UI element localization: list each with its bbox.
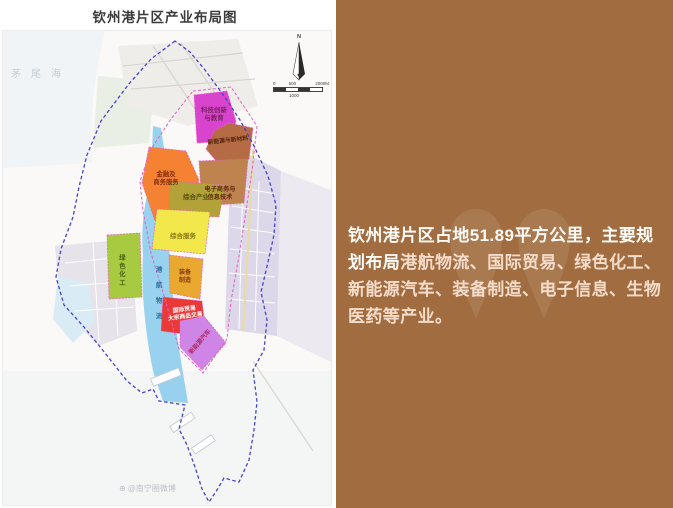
industry-layout-map: 茅尾海 N 0 500 2000M 1000 xyxy=(2,30,332,506)
scale-tick-1000: 1000 xyxy=(289,93,329,98)
zone-label-green-chemical: 绿色化工 xyxy=(117,244,125,298)
globe-icon: ⊕ xyxy=(119,484,126,493)
map-scale-bar: 0 500 2000M 1000 xyxy=(273,81,329,98)
map-panel: 钦州港片区产业布局图 xyxy=(0,0,336,508)
scale-tick-500: 500 xyxy=(289,81,297,86)
map-graphic xyxy=(3,31,332,506)
map-watermark-text: @南宁圈微博 xyxy=(128,484,176,493)
map-title: 钦州港片区产业布局图 xyxy=(0,6,330,26)
scale-tick-0: 0 xyxy=(273,81,276,86)
zone-label-port-logistics: 港航物流 xyxy=(153,246,161,348)
scale-tick-2000: 2000M xyxy=(315,81,329,86)
sea-label: 茅尾海 xyxy=(11,65,71,80)
zone-label-tech-innovation: 科技创新 与教育 xyxy=(192,107,236,123)
info-panel: 钦州港片区占地51.89平方公里，主要规划布局港航物流、国际贸易、绿色化工、新能… xyxy=(336,0,673,508)
description-text: 钦州港片区占地51.89平方公里，主要规划布局港航物流、国际贸易、绿色化工、新能… xyxy=(348,222,664,330)
zone-label-equipment-mfg: 装备 制造 xyxy=(172,270,198,285)
zone-label-comprehensive-industry: 综合产业 xyxy=(174,194,218,202)
map-watermark: ⊕@南宁圈微博 xyxy=(119,483,176,494)
scale-bar-segments xyxy=(273,87,323,92)
zone-label-comprehensive-service: 综合服务 xyxy=(161,233,205,241)
screenshot-root: 钦州港片区产业布局图 xyxy=(0,0,673,508)
compass: N xyxy=(289,34,309,87)
zone-label-finance-business: 金融及 商务服务 xyxy=(146,171,186,187)
compass-north-icon xyxy=(290,40,308,82)
